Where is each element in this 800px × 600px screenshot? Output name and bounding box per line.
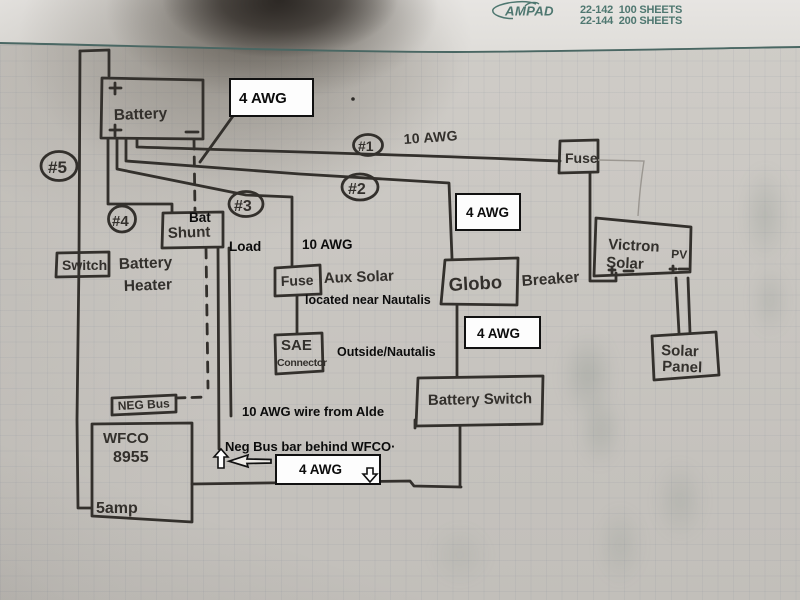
svg-text:Heater: Heater <box>124 276 173 295</box>
svg-text:PV: PV <box>671 247 688 262</box>
svg-text:Globo: Globo <box>448 271 502 295</box>
svg-text:Switch: Switch <box>62 257 107 273</box>
svg-text:4 AWG: 4 AWG <box>239 90 287 107</box>
svg-text:10 AWG wire from Alde: 10 AWG wire from Alde <box>242 404 384 419</box>
svg-text:Outside/Nautalis: Outside/Nautalis <box>337 345 436 359</box>
svg-text:4 AWG: 4 AWG <box>466 205 509 220</box>
svg-text:Neg Bus bar behind WFCO·: Neg Bus bar behind WFCO· <box>225 439 395 454</box>
svg-text:Battery: Battery <box>114 105 168 124</box>
svg-text:Fuse: Fuse <box>281 272 314 289</box>
svg-text:WFCO: WFCO <box>103 430 149 447</box>
svg-text:4 AWG: 4 AWG <box>299 462 342 477</box>
svg-text:Victron: Victron <box>608 236 660 256</box>
svg-text:8955: 8955 <box>113 449 149 466</box>
svg-text:Load: Load <box>229 239 261 254</box>
svg-text:Battery: Battery <box>119 254 173 273</box>
svg-text:Breaker: Breaker <box>521 269 580 290</box>
svg-text:4 AWG: 4 AWG <box>477 326 520 341</box>
svg-text:10 AWG: 10 AWG <box>403 127 458 147</box>
svg-text:Panel: Panel <box>662 358 703 376</box>
svg-text:NEG Bus: NEG Bus <box>117 396 170 413</box>
svg-text:#2: #2 <box>348 181 366 198</box>
svg-text:10 AWG: 10 AWG <box>302 237 353 252</box>
svg-text:#3: #3 <box>234 198 252 215</box>
svg-text:22-144 200 SHEETS: 22-144 200 SHEETS <box>580 15 682 27</box>
svg-text:SAE: SAE <box>281 337 312 354</box>
svg-text:#1: #1 <box>358 138 374 154</box>
svg-text:Connector: Connector <box>277 357 327 369</box>
svg-text:#5: #5 <box>48 158 67 177</box>
svg-text:Fuse: Fuse <box>565 150 598 166</box>
svg-text:#4: #4 <box>112 213 129 230</box>
svg-text:5amp: 5amp <box>96 500 138 517</box>
svg-text:Battery Switch: Battery Switch <box>428 390 532 409</box>
svg-text:Bat: Bat <box>189 210 211 225</box>
svg-text:AMPAD: AMPAD <box>504 4 554 19</box>
svg-text:Shunt: Shunt <box>168 224 211 242</box>
svg-text:Aux Solar: Aux Solar <box>324 268 395 287</box>
svg-text:located near Nautalis: located near Nautalis <box>305 293 431 307</box>
